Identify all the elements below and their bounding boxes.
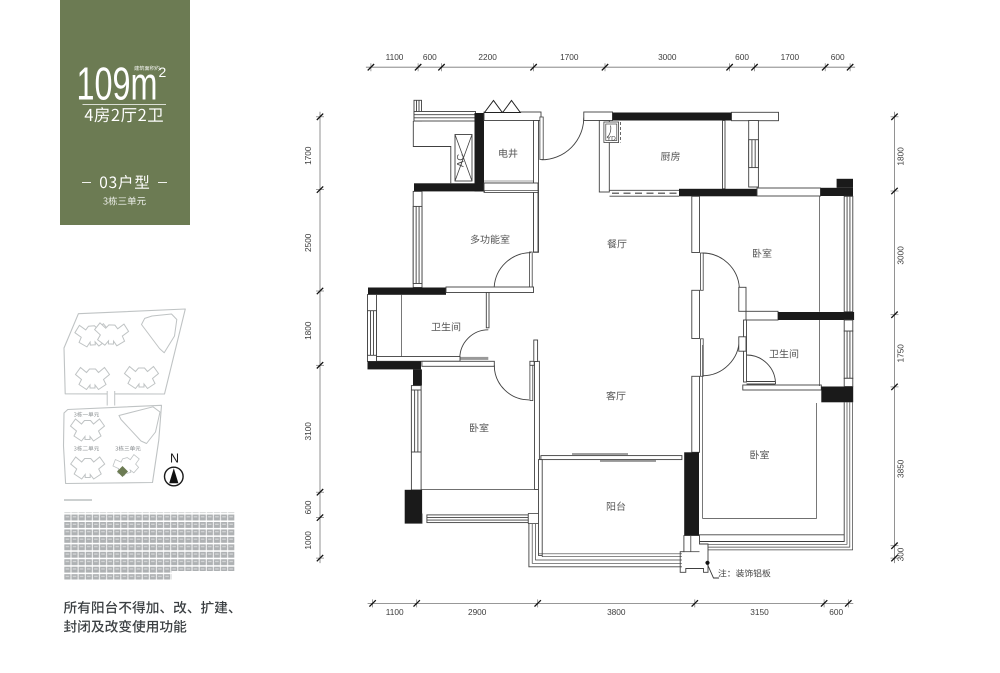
- svg-text:YD: YD: [607, 136, 616, 143]
- svg-text:1700: 1700: [303, 146, 313, 165]
- svg-text:300: 300: [896, 547, 906, 561]
- svg-text:2500: 2500: [303, 233, 313, 252]
- svg-text:600: 600: [423, 52, 437, 62]
- svg-text:3100: 3100: [303, 422, 313, 441]
- svg-text:600: 600: [735, 52, 749, 62]
- svg-text:2200: 2200: [478, 52, 497, 62]
- svg-text:1000: 1000: [303, 531, 313, 550]
- svg-text:2900: 2900: [468, 607, 487, 617]
- svg-text:1100: 1100: [386, 607, 404, 617]
- svg-text:600: 600: [831, 52, 845, 62]
- svg-text:1800: 1800: [303, 321, 313, 340]
- svg-text:109m: 109m: [77, 58, 158, 110]
- svg-text:1700: 1700: [781, 52, 800, 62]
- svg-text:600: 600: [303, 500, 313, 514]
- svg-text:1800: 1800: [896, 147, 906, 166]
- svg-text:600: 600: [829, 607, 843, 617]
- svg-text:3000: 3000: [896, 246, 906, 265]
- svg-text:N: N: [170, 452, 179, 466]
- svg-text:3150: 3150: [750, 607, 769, 617]
- svg-text:AC: AC: [456, 154, 467, 167]
- svg-text:3000: 3000: [658, 52, 677, 62]
- svg-text:3800: 3800: [607, 607, 626, 617]
- svg-text:1700: 1700: [560, 52, 579, 62]
- svg-text:2: 2: [159, 64, 167, 80]
- svg-text:1100: 1100: [386, 52, 404, 62]
- svg-text:1750: 1750: [896, 344, 906, 363]
- svg-text:3850: 3850: [896, 459, 906, 478]
